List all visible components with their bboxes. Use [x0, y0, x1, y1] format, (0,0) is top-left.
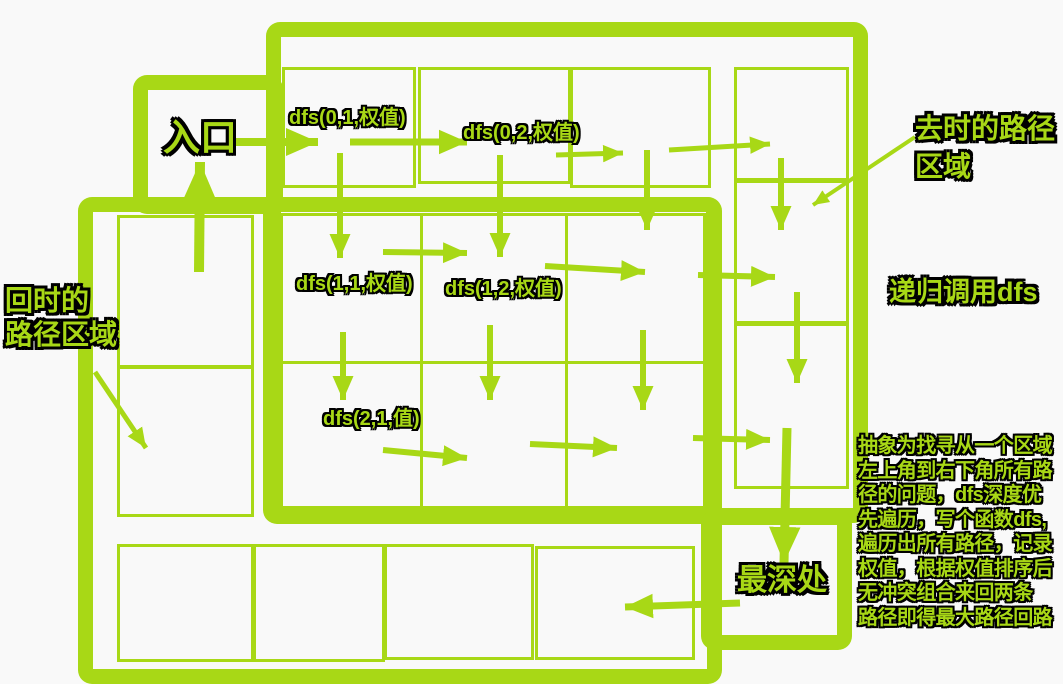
note-line: 路径即得最大路径回路	[858, 606, 1052, 631]
note-line: 径的问题，dfs深度优	[858, 483, 1052, 508]
dfs-call-label-21: dfs(2,1,值)	[323, 408, 420, 430]
grid-cell	[117, 366, 254, 517]
dfs-call-label-12: dfs(1,2,权值)	[445, 278, 562, 300]
grid-cell	[734, 323, 849, 489]
grid-cell	[734, 67, 849, 181]
grid-cell	[535, 546, 695, 660]
note-line: 无冲突组合来回两条	[858, 581, 1052, 606]
return-area-label-line2: 路径区域	[5, 320, 117, 351]
dfs-path-diagram: 入口 dfs(0,1,权值) dfs(0,2,权值) dfs(1,1,权值) d…	[0, 0, 1063, 684]
return-area-label-line1: 回时的	[5, 286, 89, 317]
outbound-area-label-line2: 区域	[915, 152, 971, 183]
grid-cell	[280, 361, 423, 509]
grid-cell	[570, 67, 711, 188]
note-line: 抽象为找寻从一个区域	[858, 434, 1052, 459]
note-line: 左上角到右下角所有路	[858, 459, 1052, 484]
outbound-area-label-line1: 去时的路径	[915, 114, 1055, 145]
grid-cell	[117, 215, 254, 368]
dfs-call-label-01: dfs(0,1,权值)	[289, 107, 406, 129]
entrance-label: 入口	[163, 118, 237, 159]
grid-cell	[420, 361, 568, 509]
dfs-call-label-11: dfs(1,1,权值)	[296, 273, 413, 295]
note-line: 权值，根据权值排序后	[858, 557, 1052, 582]
grid-cell	[565, 213, 706, 364]
grid-cell	[384, 544, 534, 660]
note-line: 遍历出所有路径，记录	[858, 532, 1052, 557]
grid-cell	[117, 544, 254, 662]
note-line: 先遍历，写个函数dfs,	[858, 508, 1052, 533]
explanation-note: 抽象为找寻从一个区域 左上角到右下角所有路 径的问题，dfs深度优 先遍历，写个…	[858, 434, 1052, 630]
grid-cell	[253, 544, 385, 662]
grid-cell	[734, 180, 849, 324]
grid-cell	[565, 361, 706, 509]
recursion-label: 递归调用dfs	[889, 278, 1038, 308]
dfs-call-label-02: dfs(0,2,权值)	[463, 122, 580, 144]
deepest-point-label: 最深处	[737, 564, 827, 597]
